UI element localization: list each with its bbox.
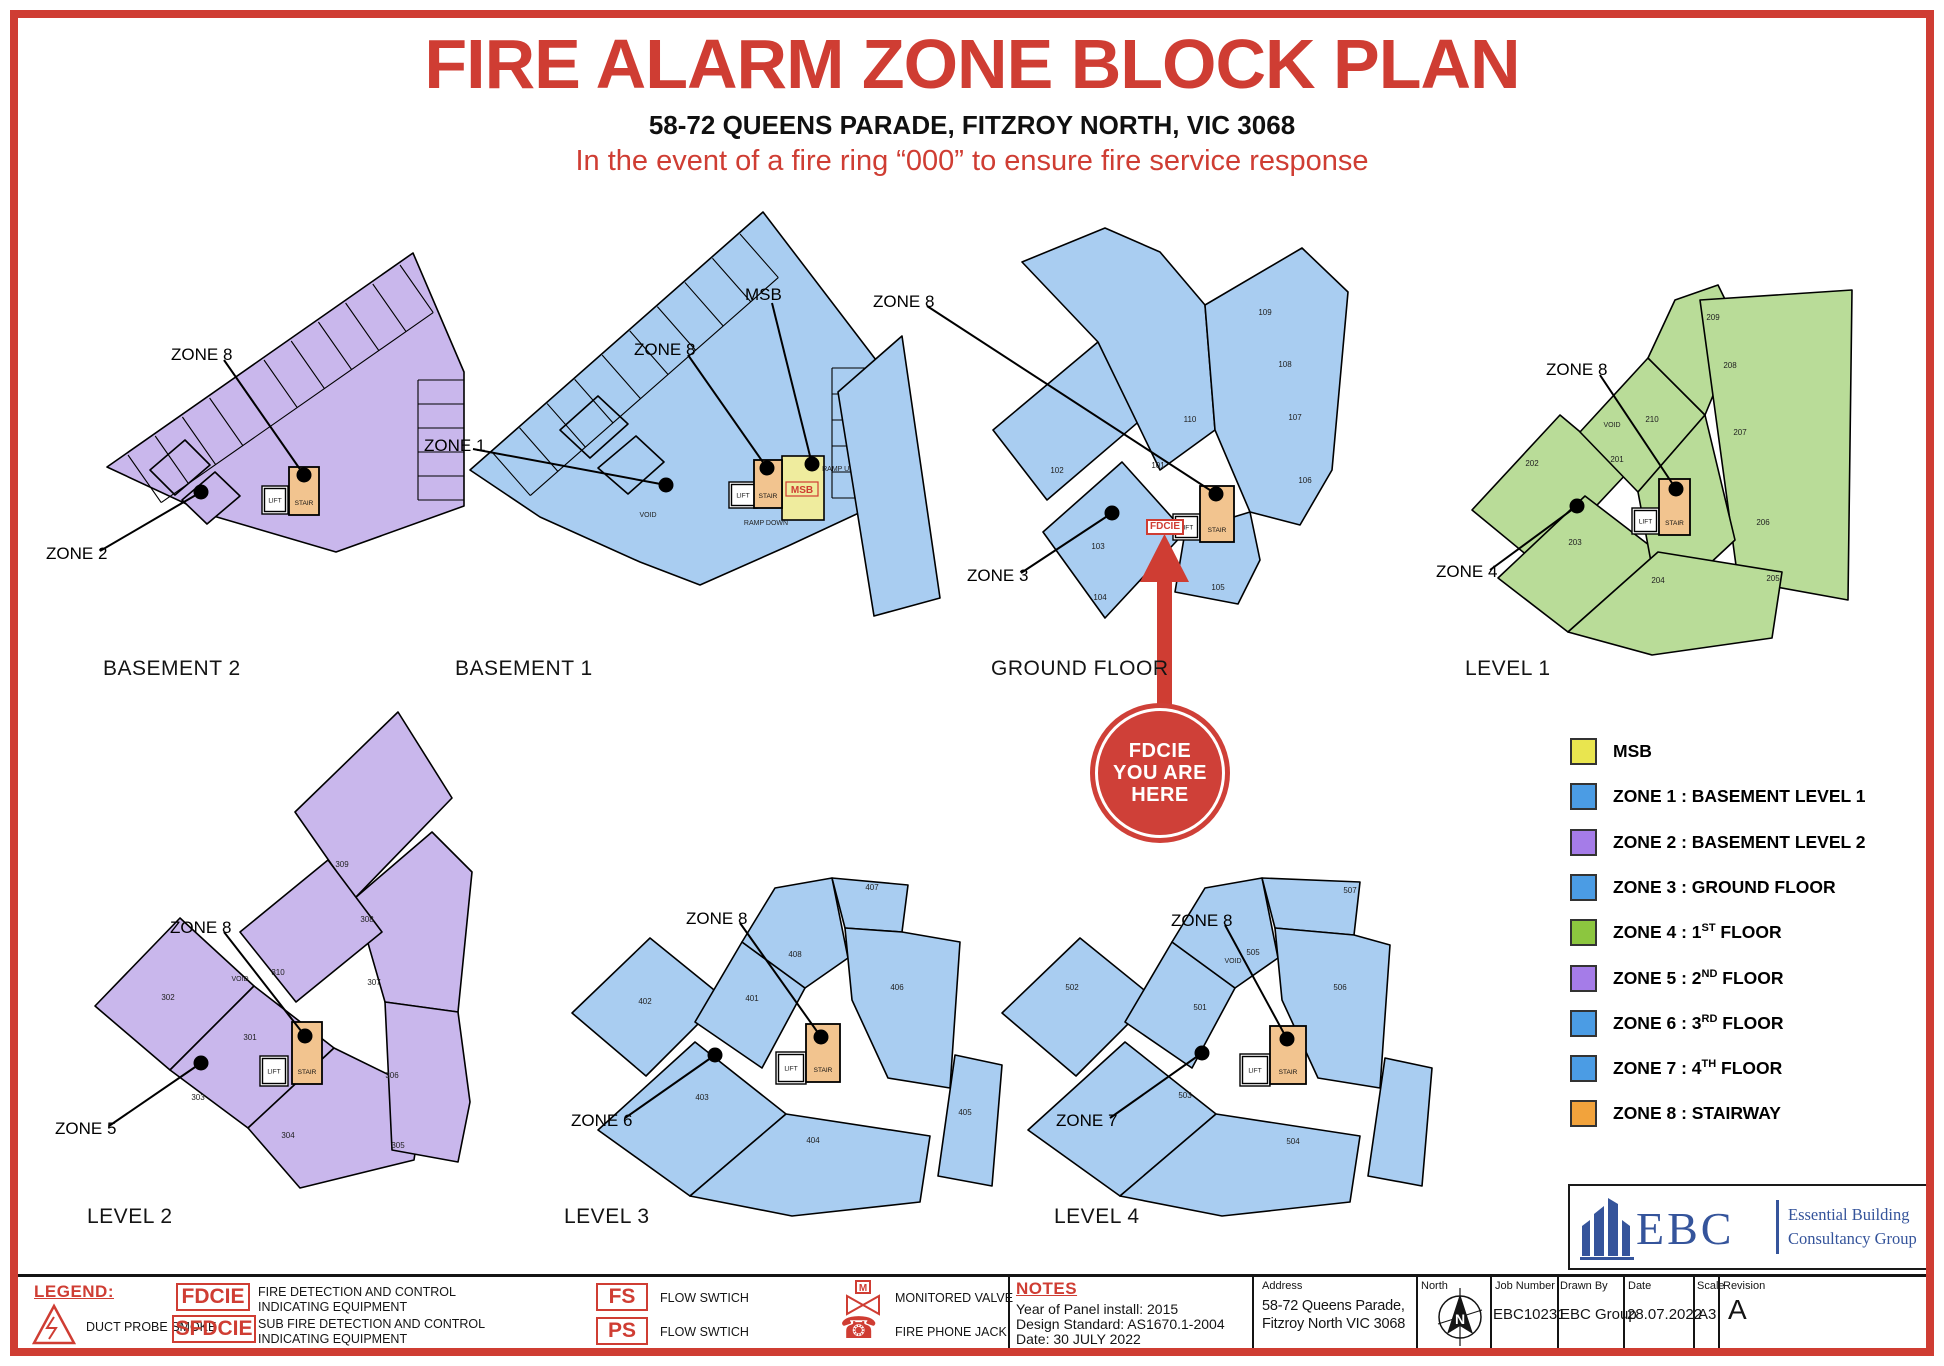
room-number: 204 [1651, 576, 1665, 585]
footer-legend-title: LEGEND: [34, 1282, 114, 1302]
ebc-name-line1: Essential Building [1788, 1203, 1917, 1227]
zone-label-zone-8: ZONE 8 [170, 918, 231, 938]
note-panel-install: Year of Panel install: 2015 [1016, 1301, 1178, 1317]
legend-swatch [1570, 1100, 1597, 1127]
address-line2: Fitzroy North VIC 3068 [1262, 1315, 1405, 1333]
footer-divider [1416, 1276, 1418, 1348]
footer-divider [1490, 1276, 1492, 1348]
room-number: 101 [1151, 461, 1165, 470]
date-value: 28.07.2022 [1627, 1306, 1702, 1323]
room-number: 401 [745, 994, 759, 1003]
plan-outline [1700, 290, 1852, 600]
room-number: 506 [1333, 983, 1347, 992]
legend-item-7: ZONE 7 : 4TH FLOOR [1570, 1055, 1782, 1082]
legend-item-5: ZONE 5 : 2ND FLOOR [1570, 965, 1784, 992]
room-number: 309 [335, 860, 349, 869]
legend-label: ZONE 7 : 4TH FLOOR [1613, 1058, 1782, 1079]
room-number: 203 [1568, 538, 1582, 547]
lift-label: LIFT [267, 1069, 280, 1076]
floor-caption-basement1: BASEMENT 1 [455, 657, 593, 681]
legend-swatch [1570, 738, 1597, 765]
room-number: 201 [1610, 455, 1624, 464]
zone-label-zone-2: ZONE 2 [46, 544, 107, 564]
floor-plan-ground: LIFTSTAIR101102103104105106107108109110 [820, 218, 1370, 628]
zone-label-zone-1: ZONE 1 [424, 436, 485, 456]
fdcie-plan-tag: FDCIE [1146, 519, 1184, 535]
room-number: 308 [360, 915, 374, 924]
lift-label: LIFT [784, 1066, 797, 1073]
lift-label: LIFT [1639, 519, 1652, 526]
room-number: 502 [1065, 983, 1079, 992]
fire-phone-jack-icon: ☎ [840, 1314, 877, 1344]
legend-label: ZONE 6 : 3RD FLOOR [1613, 1013, 1784, 1034]
you-are-here-ring: FDCIE YOU ARE HERE [1095, 708, 1225, 838]
plan-outline [470, 212, 876, 585]
room-number: 205 [1766, 574, 1780, 583]
stair-label: STAIR [759, 493, 778, 500]
legend-item-8: ZONE 8 : STAIRWAY [1570, 1100, 1781, 1127]
zone-label-zone-8: ZONE 8 [1171, 911, 1232, 931]
room-number: 310 [271, 968, 285, 977]
floor-caption-ground: GROUND FLOOR [991, 657, 1169, 681]
scale-value: A3 [1698, 1306, 1716, 1323]
ebc-buildings-icon [1580, 1194, 1636, 1264]
plan-text: VOID [639, 512, 656, 519]
zone-label-zone-8: ZONE 8 [873, 292, 934, 312]
floor-caption-level1: LEVEL 1 [1465, 657, 1551, 681]
ebc-abbr: EBC [1636, 1202, 1734, 1255]
stair-label: STAIR [298, 1069, 317, 1076]
floor-plan-basement2: LIFTSTAIR [80, 200, 480, 570]
floor-caption-level3: LEVEL 3 [564, 1205, 650, 1229]
lift-label: LIFT [736, 493, 749, 500]
room-number: 104 [1093, 593, 1107, 602]
drawn-by-value: EBC Group [1560, 1306, 1637, 1323]
room-number: 108 [1278, 360, 1292, 369]
monitored-valve-icon: M [843, 1280, 883, 1316]
plan-text: VOID [1603, 422, 1620, 429]
monitored-valve-m: M [859, 1283, 867, 1294]
ebc-logo: EBC Essential Building Consultancy Group [1568, 1184, 1928, 1270]
badge-line-2: YOU ARE [1113, 762, 1207, 784]
scale-label: Scale [1697, 1280, 1725, 1292]
room-number: 406 [890, 983, 904, 992]
room-number: 402 [638, 997, 652, 1006]
room-number: 202 [1525, 459, 1539, 468]
revision-value: A [1728, 1294, 1747, 1326]
legend-label: MSB [1613, 741, 1652, 762]
room-number: 106 [1298, 476, 1312, 485]
floor-plan-level1: LIFTSTAIR201202203204205206207208209210V… [1430, 270, 1862, 665]
room-number: 107 [1288, 413, 1302, 422]
zone-label-zone-6: ZONE 6 [571, 1111, 632, 1131]
floor-caption-basement2: BASEMENT 2 [103, 657, 241, 681]
fire-phone-jack-label: FIRE PHONE JACK [895, 1325, 1007, 1340]
legend-item-4: ZONE 4 : 1ST FLOOR [1570, 919, 1782, 946]
room-number: 301 [243, 1033, 257, 1042]
room-number: 501 [1193, 1003, 1207, 1012]
revision-label: Revision [1723, 1280, 1765, 1292]
plan-outline [385, 1002, 470, 1162]
legend-item-0: MSB [1570, 738, 1652, 765]
legend-label: ZONE 3 : GROUND FLOOR [1613, 877, 1836, 898]
room-number: 303 [191, 1093, 205, 1102]
room-number: 507 [1343, 886, 1357, 895]
emergency-instruction: In the event of a fire ring “000” to ens… [0, 145, 1944, 178]
monitored-valve-label: MONITORED VALVE [895, 1291, 1013, 1306]
legend-item-2: ZONE 2 : BASEMENT LEVEL 2 [1570, 829, 1866, 856]
room-number: 305 [391, 1141, 405, 1150]
sfdcie-desc-line2: INDICATING EQUIPMENT [258, 1332, 485, 1347]
legend-label: ZONE 1 : BASEMENT LEVEL 1 [1613, 786, 1866, 807]
duct-probe-smoke-icon [32, 1303, 78, 1347]
room-number: 302 [161, 993, 175, 1002]
zone-label-zone-8: ZONE 8 [634, 340, 695, 360]
fdcie-abbr-box: FDCIE [176, 1283, 250, 1311]
zone-label-zone-5: ZONE 5 [55, 1119, 116, 1139]
notes-title: NOTES [1016, 1279, 1077, 1299]
plan-text: VOID [231, 976, 248, 983]
north-compass-icon: N [1432, 1286, 1488, 1348]
note-date: Date: 30 JULY 2022 [1016, 1331, 1141, 1347]
room-number: 407 [865, 883, 879, 892]
stair-label: STAIR [1208, 527, 1227, 534]
room-number: 505 [1246, 948, 1260, 957]
fs-label: FLOW SWTICH [660, 1291, 749, 1306]
floor-plan-level2: LIFTSTAIR301302303304305306307308309310V… [60, 700, 485, 1200]
ebc-name-line2: Consultancy Group [1788, 1227, 1917, 1251]
page-subtitle: 58-72 QUEENS PARADE, FITZROY NORTH, VIC … [0, 110, 1944, 141]
legend-label: ZONE 5 : 2ND FLOOR [1613, 968, 1784, 989]
fdcie-desc-line2: INDICATING EQUIPMENT [258, 1300, 456, 1315]
stair-label: STAIR [814, 1067, 833, 1074]
job-number-value: EBC10231 [1493, 1306, 1566, 1323]
stair-label: STAIR [1665, 520, 1684, 527]
plan-text: VOID [1224, 958, 1241, 965]
fdcie-desc-line1: FIRE DETECTION AND CONTROL [258, 1285, 456, 1300]
zone-label-zone-8: ZONE 8 [686, 909, 747, 929]
room-number: 109 [1258, 308, 1272, 317]
room-number: 110 [1184, 415, 1197, 424]
drawn-by-label: Drawn By [1560, 1280, 1608, 1292]
room-number: 408 [788, 950, 802, 959]
footer-divider [1008, 1276, 1010, 1348]
legend-item-6: ZONE 6 : 3RD FLOOR [1570, 1010, 1784, 1037]
legend-swatch [1570, 783, 1597, 810]
address-label: Address [1262, 1280, 1302, 1292]
north-n: N [1455, 1311, 1465, 1327]
legend-item-3: ZONE 3 : GROUND FLOOR [1570, 874, 1836, 901]
stair-box [289, 467, 319, 515]
plan-outline [1205, 248, 1348, 525]
date-label: Date [1628, 1280, 1651, 1292]
legend-label: ZONE 4 : 1ST FLOOR [1613, 922, 1782, 943]
badge-line-1: FDCIE [1129, 740, 1192, 762]
stair-box [754, 460, 782, 508]
note-design-standard: Design Standard: AS1670.1-2004 [1016, 1316, 1225, 1332]
zone-label-msb: MSB [745, 285, 782, 305]
floor-caption-level4: LEVEL 4 [1054, 1205, 1140, 1229]
room-number: 307 [367, 978, 381, 987]
legend-label: ZONE 8 : STAIRWAY [1613, 1103, 1781, 1124]
msb-tag-text: MSB [791, 485, 813, 496]
sfdcie-desc-line1: SUB FIRE DETECTION AND CONTROL [258, 1317, 485, 1332]
room-number: 504 [1286, 1137, 1300, 1146]
room-number: 208 [1723, 361, 1737, 370]
room-number: 210 [1645, 415, 1659, 424]
plan-outline [845, 928, 960, 1088]
plan-text: RAMP DOWN [744, 520, 788, 527]
address-line1: 58-72 Queens Parade, [1262, 1297, 1405, 1315]
room-number: 105 [1211, 583, 1225, 592]
legend-swatch [1570, 829, 1597, 856]
zone-label-zone-8: ZONE 8 [171, 345, 232, 365]
legend-swatch [1570, 1010, 1597, 1037]
legend-label: ZONE 2 : BASEMENT LEVEL 2 [1613, 832, 1866, 853]
room-number: 102 [1050, 466, 1064, 475]
plan-outline [838, 336, 940, 616]
page-title: FIRE ALARM ZONE BLOCK PLAN [0, 24, 1944, 104]
legend-swatch [1570, 965, 1597, 992]
legend-swatch [1570, 1055, 1597, 1082]
lift-label: LIFT [268, 498, 281, 505]
footer-divider [1252, 1276, 1254, 1348]
room-number: 206 [1756, 518, 1770, 527]
zone-label-zone-3: ZONE 3 [967, 566, 1028, 586]
room-number: 209 [1706, 313, 1720, 322]
ps-abbr-box: PS [596, 1317, 648, 1345]
zone-label-zone-8: ZONE 8 [1546, 360, 1607, 380]
room-number: 405 [958, 1108, 972, 1117]
floor-plan-level3: LIFTSTAIR401402403404405406407408 [555, 868, 1015, 1223]
legend-swatch [1570, 919, 1597, 946]
zone-label-zone-4: ZONE 4 [1436, 562, 1497, 582]
stair-label: STAIR [295, 500, 314, 507]
room-number: 103 [1091, 542, 1105, 551]
logo-divider [1776, 1200, 1779, 1254]
zone-label-zone-7: ZONE 7 [1056, 1111, 1117, 1131]
footer-top-border [18, 1274, 1926, 1277]
room-number: 207 [1733, 428, 1747, 437]
fs-abbr-box: FS [596, 1283, 648, 1311]
fire-alarm-zone-block-plan-page: FIRE ALARM ZONE BLOCK PLAN 58-72 QUEENS … [0, 0, 1944, 1366]
legend-swatch [1570, 874, 1597, 901]
room-number: 304 [281, 1131, 295, 1140]
ebc-full-name: Essential Building Consultancy Group [1788, 1203, 1917, 1251]
lift-label: LIFT [1248, 1068, 1261, 1075]
room-number: 306 [385, 1071, 399, 1080]
room-number: 404 [806, 1136, 820, 1145]
legend-item-1: ZONE 1 : BASEMENT LEVEL 1 [1570, 783, 1866, 810]
ps-label: FLOW SWTICH [660, 1325, 749, 1340]
job-number-label: Job Number [1495, 1280, 1555, 1292]
room-number: 403 [695, 1093, 709, 1102]
room-number: 503 [1178, 1091, 1192, 1100]
sfdcie-abbr-box: SFDCIE [172, 1315, 256, 1343]
stair-label: STAIR [1279, 1069, 1298, 1076]
you-are-here-badge: FDCIE YOU ARE HERE [1090, 703, 1230, 843]
floor-caption-level2: LEVEL 2 [87, 1205, 173, 1229]
badge-line-3: HERE [1131, 784, 1189, 806]
